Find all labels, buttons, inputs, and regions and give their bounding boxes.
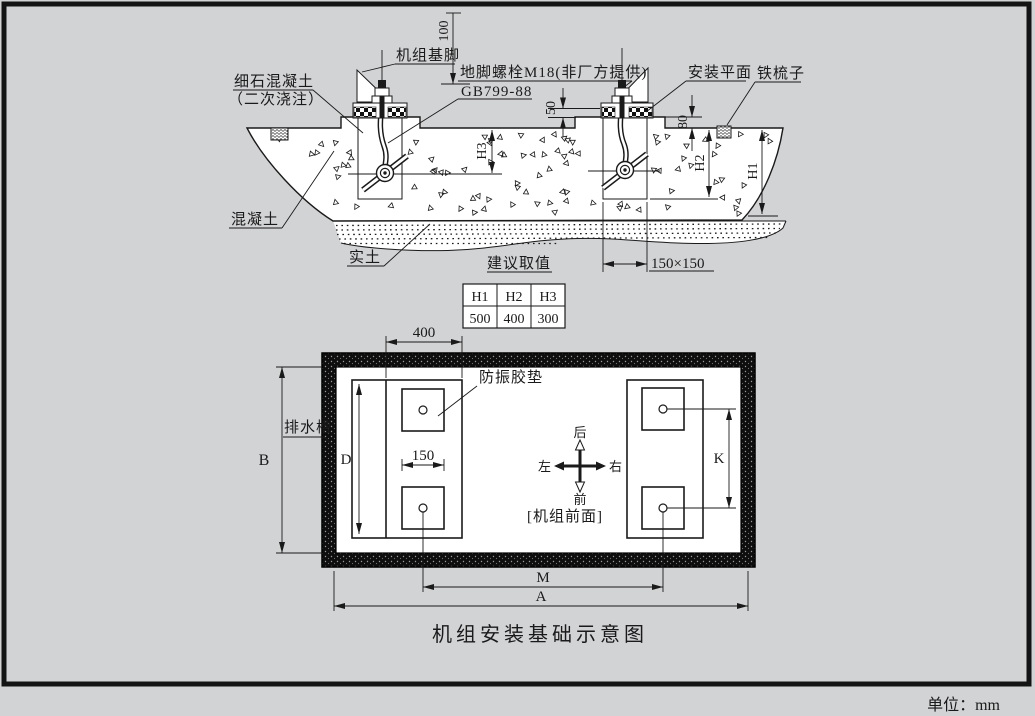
dir-left-label: 左	[538, 459, 551, 474]
svg-text:排水槽: 排水槽	[284, 419, 332, 436]
svg-text:150: 150	[412, 448, 435, 464]
iron-comb-left	[271, 128, 288, 140]
svg-text:400: 400	[504, 312, 525, 327]
svg-text:50: 50	[544, 101, 559, 115]
svg-text:H3: H3	[539, 290, 556, 305]
svg-text:300: 300	[538, 312, 559, 327]
svg-text:混凝土: 混凝土	[231, 211, 279, 228]
svg-text:B: B	[259, 452, 270, 469]
right-pad-group	[627, 380, 703, 538]
svg-text:D: D	[341, 452, 352, 468]
drawing-title: 机组安装基础示意图	[432, 623, 648, 646]
svg-text:400: 400	[413, 325, 436, 341]
svg-text:A: A	[536, 589, 547, 605]
unit-front-note: [机组前面]	[527, 508, 603, 525]
svg-text:H3: H3	[475, 142, 490, 159]
svg-text:实土: 实土	[349, 249, 381, 266]
svg-text:GB799-88: GB799-88	[461, 84, 532, 100]
svg-text:100: 100	[437, 21, 452, 42]
svg-text:80: 80	[676, 115, 691, 129]
svg-text:150×150: 150×150	[651, 256, 704, 272]
svg-text:500: 500	[470, 312, 491, 327]
left-pad-group	[352, 380, 462, 538]
sheet-border	[4, 4, 1029, 684]
svg-text:M: M	[536, 570, 549, 586]
dir-back-label: 后	[573, 425, 586, 440]
svg-text:细石混凝土: 细石混凝土	[234, 73, 314, 90]
unit-note: 单位：mm	[927, 696, 1000, 714]
iron-comb-right	[717, 126, 731, 138]
svg-text:H2: H2	[693, 154, 708, 171]
dir-right-label: 右	[609, 459, 622, 474]
svg-text:K: K	[714, 451, 725, 467]
svg-text:建议取值: 建议取值	[487, 255, 551, 272]
svg-text:地脚螺栓M18(非厂方提供): 地脚螺栓M18(非厂方提供)	[460, 64, 647, 81]
svg-text:（二次浇注）: （二次浇注）	[228, 91, 324, 108]
svg-text:铁梳子: 铁梳子	[757, 65, 805, 82]
svg-text:安装平面: 安装平面	[688, 64, 752, 81]
svg-text:H1: H1	[746, 162, 761, 179]
svg-text:防振胶垫: 防振胶垫	[479, 369, 543, 386]
dir-front-label: 前	[573, 492, 586, 507]
drawing-sheet: 100 50 H3 80 H2	[0, 0, 1035, 716]
svg-text:机组基脚: 机组基脚	[396, 47, 460, 64]
installation-foundation-diagram: 100 50 H3 80 H2	[0, 0, 1035, 716]
svg-text:H2: H2	[505, 290, 522, 305]
svg-text:H1: H1	[471, 290, 488, 305]
